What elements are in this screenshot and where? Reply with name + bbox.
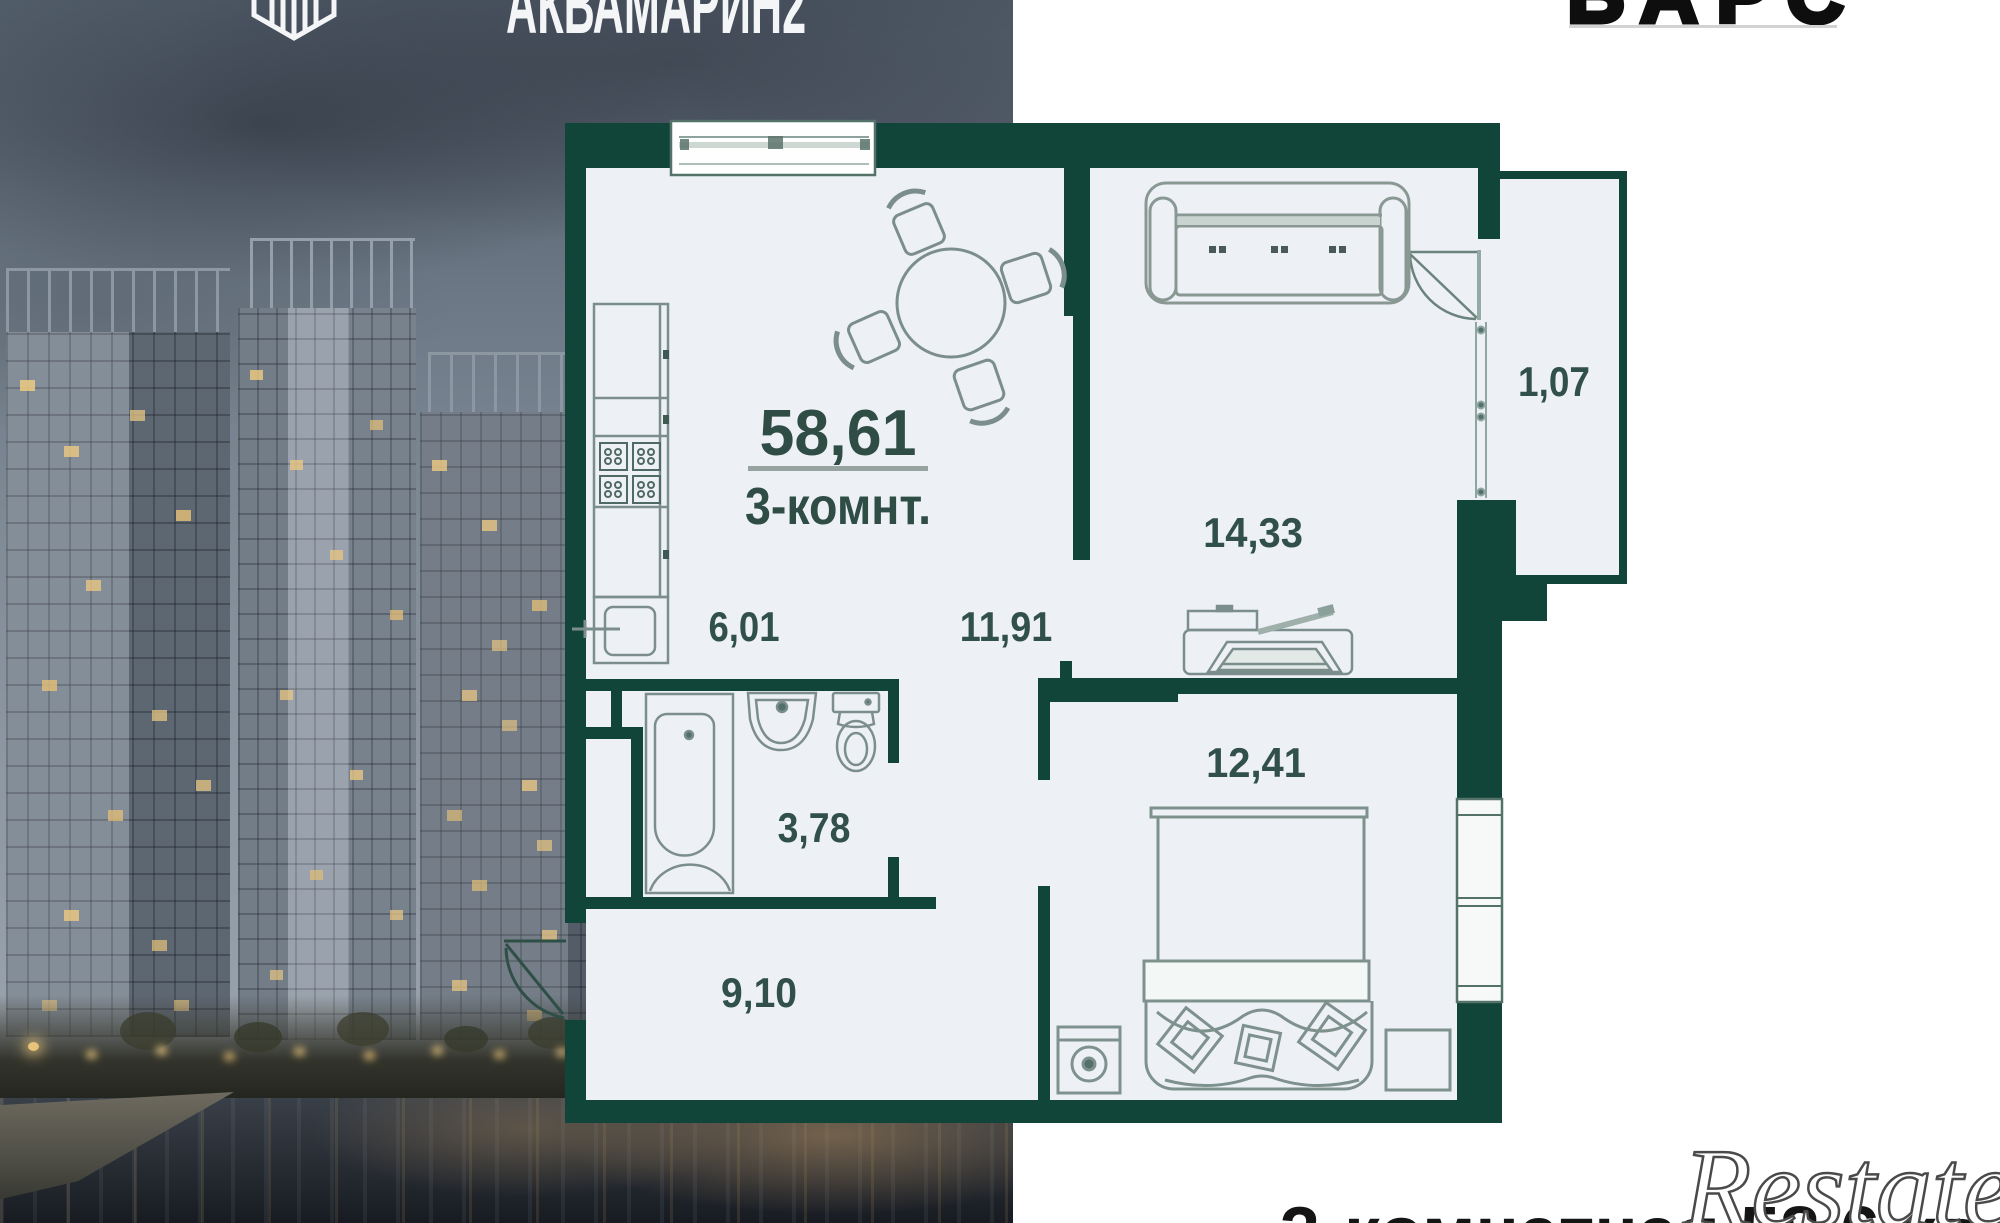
svg-text:3-комнт.: 3-комнт. <box>745 478 931 536</box>
svg-text:Restate: Restate <box>1682 1127 2000 1223</box>
svg-text:3,78: 3,78 <box>778 805 851 851</box>
svg-text:1,07: 1,07 <box>1518 359 1590 406</box>
svg-text:6,01: 6,01 <box>708 604 779 651</box>
svg-text:14,33: 14,33 <box>1203 509 1303 556</box>
svg-text:БАРС: БАРС <box>1567 0 1844 39</box>
svg-text:АКВАМАРИН2: АКВАМАРИН2 <box>506 0 806 51</box>
svg-text:58,61: 58,61 <box>760 396 917 469</box>
svg-text:11,91: 11,91 <box>960 604 1052 650</box>
svg-text:12,41: 12,41 <box>1206 739 1306 786</box>
svg-text:9,10: 9,10 <box>721 969 797 1017</box>
